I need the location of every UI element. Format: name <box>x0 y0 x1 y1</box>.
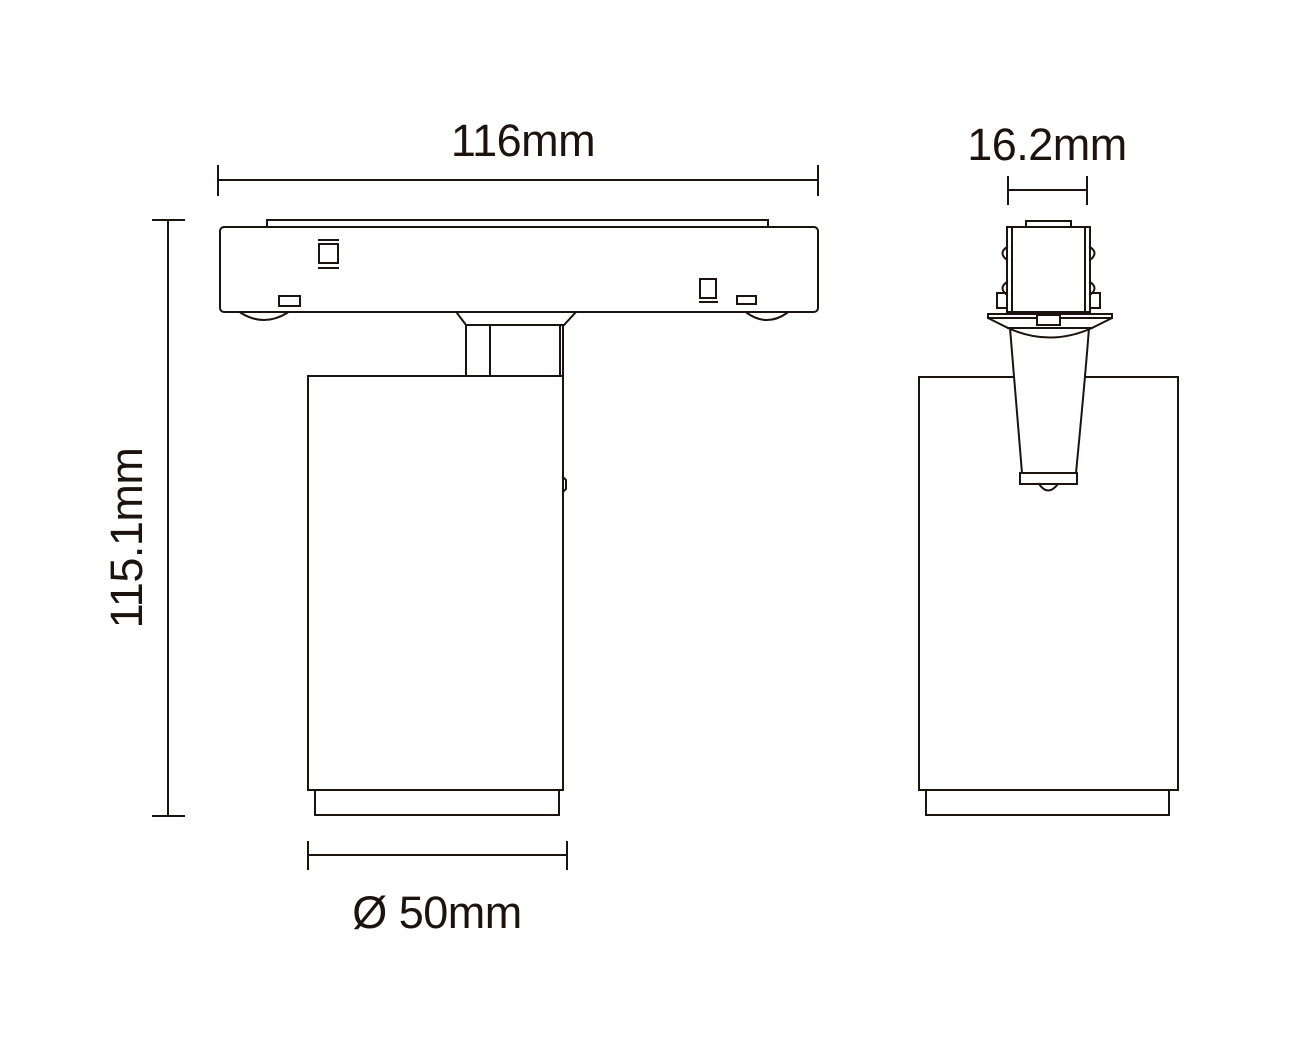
adapter-screw-boss-left <box>241 313 287 320</box>
depth-label: 16.2mm <box>967 119 1127 170</box>
adapter-hook-left <box>997 293 1007 308</box>
drawing-root: 116mm 16.2mm 115.1mm Ø 50mm <box>101 115 1178 938</box>
lamp-head-bezel-side <box>926 790 1169 815</box>
adapter-hook-right <box>1090 293 1100 308</box>
adapter-screw-boss-right <box>747 313 787 320</box>
arm-foot <box>1020 473 1077 484</box>
stem-flange <box>457 313 575 325</box>
track-spotlight-dimension-drawing: 116mm 16.2mm 115.1mm Ø 50mm <box>0 0 1293 1042</box>
dimension-height <box>153 220 184 816</box>
diameter-label: Ø 50mm <box>352 887 522 938</box>
dimension-width <box>218 166 818 195</box>
lamp-head-front <box>308 376 563 790</box>
dimension-diameter <box>308 842 567 869</box>
front-view <box>153 166 818 869</box>
width-label: 116mm <box>451 115 595 166</box>
dimension-drawing-page: 116mm 16.2mm 115.1mm Ø 50mm <box>0 0 1293 1042</box>
track-adapter-body-side <box>1007 227 1090 312</box>
height-label: 115.1mm <box>101 448 152 629</box>
dimension-depth <box>1008 177 1087 204</box>
mount-clamp-block <box>1037 315 1060 325</box>
lamp-head-bezel-front <box>315 790 559 815</box>
track-adapter-body <box>220 227 818 312</box>
side-view <box>919 177 1178 815</box>
